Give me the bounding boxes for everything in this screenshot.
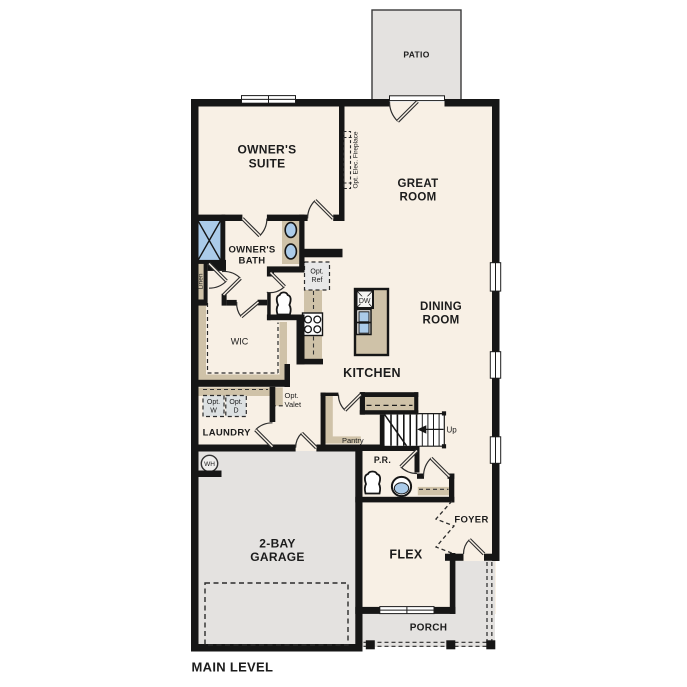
svg-text:WH: WH <box>204 461 215 468</box>
svg-text:SUITE: SUITE <box>249 157 286 171</box>
svg-text:ROOM: ROOM <box>400 192 437 204</box>
svg-text:GARAGE: GARAGE <box>250 550 304 564</box>
svg-text:Linen: Linen <box>197 273 204 289</box>
svg-text:Opt.: Opt. <box>310 269 323 276</box>
svg-text:OWNER'S: OWNER'S <box>228 245 275 256</box>
svg-text:KITCHEN: KITCHEN <box>343 366 401 380</box>
svg-text:ROOM: ROOM <box>423 315 460 327</box>
svg-text:PORCH: PORCH <box>410 622 448 633</box>
svg-text:FOYER: FOYER <box>454 515 488 526</box>
svg-text:PATIO: PATIO <box>403 50 429 60</box>
svg-text:Valet: Valet <box>285 400 302 409</box>
svg-text:BATH: BATH <box>239 256 266 267</box>
svg-text:Opt.: Opt. <box>207 399 220 406</box>
svg-text:Opt.: Opt. <box>285 391 299 400</box>
svg-text:Opt.: Opt. <box>229 399 242 406</box>
svg-text:Up: Up <box>447 425 458 434</box>
svg-text:Opt. Elec. Fireplace: Opt. Elec. Fireplace <box>353 131 360 188</box>
svg-text:WIC: WIC <box>231 337 249 347</box>
svg-text:OWNER'S: OWNER'S <box>238 143 297 157</box>
svg-text:DW: DW <box>359 298 371 305</box>
svg-text:W: W <box>210 407 217 414</box>
svg-text:D: D <box>233 407 238 414</box>
svg-text:DINING: DINING <box>420 301 462 313</box>
svg-text:GREAT: GREAT <box>398 178 439 190</box>
svg-text:FLEX: FLEX <box>389 547 423 561</box>
svg-text:Pantry: Pantry <box>342 436 364 445</box>
svg-text:LAUNDRY: LAUNDRY <box>203 427 252 438</box>
svg-text:2-BAY: 2-BAY <box>259 537 295 551</box>
svg-text:P.R.: P.R. <box>374 455 391 465</box>
svg-text:Ref: Ref <box>312 277 323 284</box>
svg-text:MAIN LEVEL: MAIN LEVEL <box>192 660 274 675</box>
